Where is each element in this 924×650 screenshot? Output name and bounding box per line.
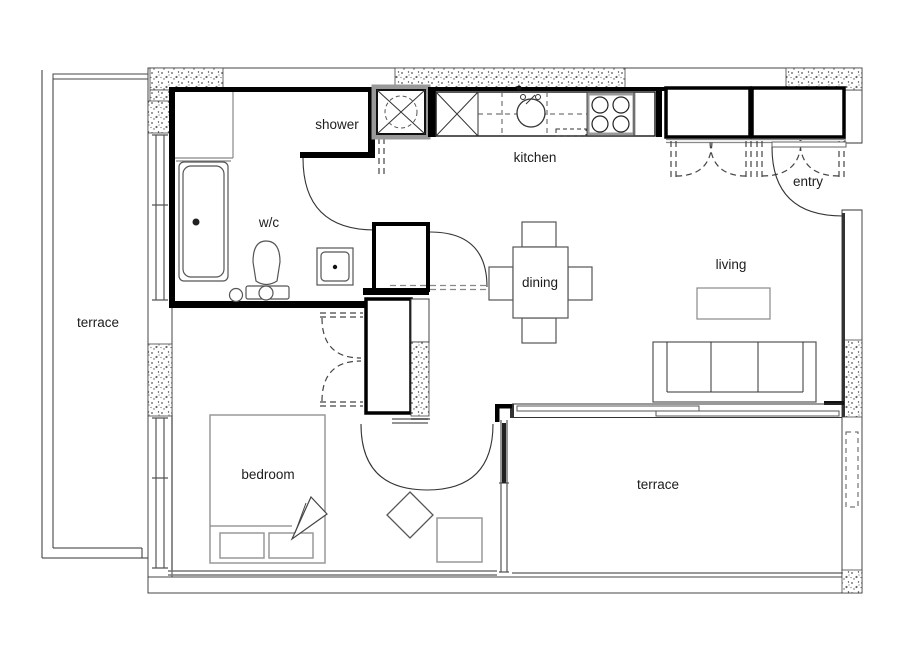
dining-chair: [489, 267, 513, 300]
ottoman-diamond: [387, 492, 433, 538]
room-label-entry: entry: [793, 174, 823, 189]
dining-set: dining: [489, 222, 592, 343]
bathtub: [179, 162, 228, 281]
wall-corner: [495, 404, 500, 422]
wall: [300, 152, 375, 158]
wall-edge: [842, 213, 845, 417]
room-label-terrace-left: terrace: [77, 315, 119, 330]
entry-closet: [752, 88, 844, 137]
room-label-terrace-bottom: terrace: [637, 477, 679, 492]
terrace-left-railing: [42, 70, 148, 558]
wall: [169, 87, 175, 308]
entry-closet: [666, 88, 750, 137]
room-label-shower: shower: [315, 117, 359, 132]
dining-chair: [522, 222, 556, 247]
side-table: [437, 518, 482, 562]
coffee-table: [697, 288, 770, 319]
wall: [172, 301, 370, 308]
wall-hatch: [842, 570, 862, 593]
pillow: [269, 533, 313, 558]
bedroom-wardrobe: [366, 299, 411, 413]
room-label-bedroom: bedroom: [241, 467, 294, 482]
sofa: [653, 342, 816, 402]
entry-area: entry: [666, 88, 846, 216]
floor-plan: shower w/c: [0, 0, 924, 650]
bedroom: bedroom: [172, 415, 493, 572]
bed: [210, 415, 327, 563]
living-room: living: [653, 257, 816, 402]
kitchen: kitchen: [428, 86, 665, 166]
terrace-window-edge: [499, 420, 509, 572]
wall-hatch: [148, 344, 172, 416]
room-label-living: living: [716, 257, 747, 272]
wall-hatch: [148, 101, 172, 133]
terrace-bottom: terrace: [495, 404, 842, 573]
sliding-door: [510, 404, 842, 418]
room-label-wc: w/c: [258, 215, 280, 230]
dining-chair: [568, 267, 592, 300]
room-label-dining: dining: [522, 275, 558, 290]
wall-hatch: [411, 342, 429, 416]
wall-hatch: [150, 68, 223, 90]
bedroom-door: [361, 419, 493, 490]
wc-sink: [317, 248, 353, 285]
toilet: [230, 241, 290, 302]
dining-chair: [522, 318, 556, 343]
stove-icon: [587, 92, 634, 136]
shower-stall: [374, 87, 436, 137]
pillow: [220, 533, 264, 558]
bedroom-window: [168, 571, 497, 575]
wardrobe-bifold-doors: [320, 313, 363, 406]
floorplan-svg: shower w/c: [0, 0, 924, 650]
hall-closet: [374, 224, 428, 290]
room-label-kitchen: kitchen: [514, 150, 557, 165]
